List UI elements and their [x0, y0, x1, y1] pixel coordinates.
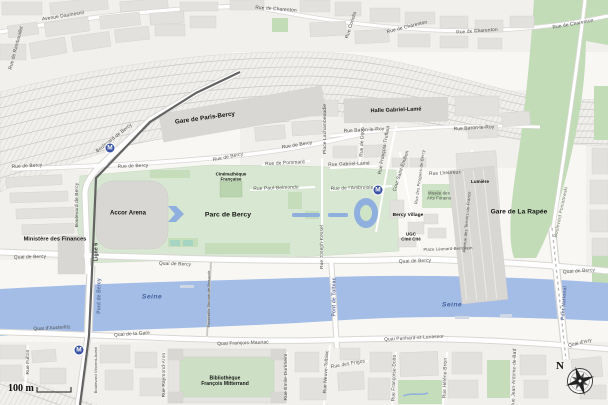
metro-station-icon: M — [106, 144, 115, 153]
compass-north-label: N — [556, 360, 564, 372]
map-canvas[interactable]: Avenue DaumesnilRue de RambouilletRue de… — [0, 0, 608, 405]
metro-station-icon: M — [75, 346, 84, 355]
scale-label: 100 m — [8, 383, 34, 394]
map-graphics — [0, 0, 608, 405]
metro-station-icon: M — [374, 186, 383, 195]
